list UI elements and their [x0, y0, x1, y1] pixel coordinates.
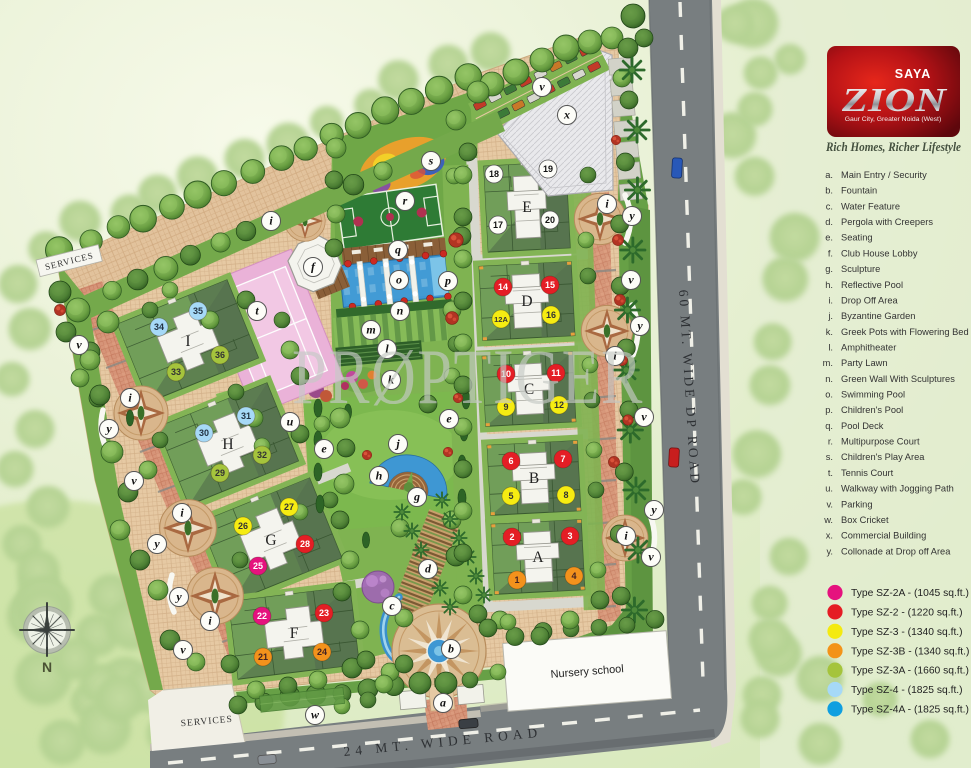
svg-text:Type SZ-4 - (1825 sq.ft.): Type SZ-4 - (1825 sq.ft.) [851, 685, 963, 696]
svg-text:g.: g. [825, 264, 833, 274]
svg-text:u.: u. [825, 484, 833, 494]
svg-text:27: 27 [284, 502, 294, 512]
svg-text:A: A [532, 549, 544, 566]
svg-text:H: H [222, 436, 233, 453]
svg-text:Type SZ-2 - (1220 sq.ft.): Type SZ-2 - (1220 sq.ft.) [851, 608, 963, 619]
svg-text:Children's Play Area: Children's Play Area [841, 452, 925, 462]
svg-text:l.: l. [828, 343, 833, 353]
svg-text:o: o [396, 273, 402, 287]
svg-text:Seating: Seating [841, 233, 873, 243]
svg-text:B: B [529, 470, 539, 487]
svg-text:y: y [649, 503, 657, 517]
svg-text:p: p [444, 274, 451, 288]
svg-text:6: 6 [508, 456, 513, 466]
svg-text:Type SZ-3B - (1340 sq.ft.): Type SZ-3B - (1340 sq.ft.) [851, 646, 969, 657]
svg-text:20: 20 [545, 215, 555, 225]
svg-text:16: 16 [546, 310, 556, 320]
svg-text:PRØPTIGER: PRØPTIGER [292, 333, 644, 420]
svg-text:12A: 12A [494, 315, 508, 324]
svg-text:36: 36 [215, 350, 225, 360]
svg-text:k.: k. [826, 327, 833, 337]
svg-text:18: 18 [489, 169, 499, 179]
svg-text:30: 30 [199, 428, 209, 438]
svg-text:Fountain: Fountain [841, 186, 877, 196]
svg-text:v: v [180, 643, 186, 657]
svg-text:Amphitheater: Amphitheater [841, 343, 896, 353]
svg-text:Greek Pots with Flowering Bed: Greek Pots with Flowering Bed [841, 327, 969, 337]
svg-text:34: 34 [154, 322, 164, 332]
svg-text:h.: h. [825, 280, 833, 290]
svg-text:Multipurpose Court: Multipurpose Court [841, 437, 920, 447]
svg-text:Type SZ-2A - (1045 sq.ft.): Type SZ-2A - (1045 sq.ft.) [851, 588, 969, 599]
svg-text:h: h [376, 469, 383, 483]
svg-text:Green Wall With Sculptures: Green Wall With Sculptures [841, 374, 955, 384]
svg-text:a: a [440, 696, 446, 710]
svg-text:v.: v. [826, 499, 833, 509]
svg-text:SAYA: SAYA [895, 67, 931, 81]
svg-text:Type SZ-3A - (1660 sq.ft.): Type SZ-3A - (1660 sq.ft.) [851, 666, 969, 677]
svg-text:d.: d. [825, 217, 833, 227]
svg-text:Sculpture: Sculpture [841, 264, 880, 274]
svg-text:Children's Pool: Children's Pool [841, 405, 903, 415]
svg-text:22: 22 [257, 611, 267, 621]
svg-text:i.: i. [828, 295, 833, 305]
svg-text:23: 23 [319, 608, 329, 618]
svg-text:Reflective Pool: Reflective Pool [841, 280, 903, 290]
svg-text:b: b [448, 642, 454, 656]
svg-text:d: d [425, 562, 432, 576]
svg-text:D: D [521, 293, 532, 310]
svg-text:e: e [321, 442, 327, 456]
svg-text:35: 35 [193, 306, 203, 316]
svg-text:n: n [397, 304, 404, 318]
svg-text:b.: b. [825, 186, 833, 196]
svg-text:26: 26 [238, 521, 248, 531]
svg-text:y.: y. [826, 546, 833, 556]
svg-text:14: 14 [498, 282, 508, 292]
svg-text:Club House Lobby: Club House Lobby [841, 248, 918, 258]
svg-text:Party Lawn: Party Lawn [841, 358, 888, 368]
svg-text:q.: q. [825, 421, 833, 431]
svg-text:Water Feature: Water Feature [841, 201, 900, 211]
svg-text:Pergola with Creepers: Pergola with Creepers [841, 217, 933, 227]
svg-text:Byzantine Garden: Byzantine Garden [841, 311, 915, 321]
svg-text:8: 8 [563, 490, 568, 500]
svg-text:1: 1 [514, 575, 519, 585]
svg-text:32: 32 [257, 450, 267, 460]
svg-text:c: c [389, 599, 395, 613]
svg-text:G: G [265, 532, 276, 549]
svg-text:I: I [185, 333, 190, 350]
svg-text:s.: s. [826, 452, 833, 462]
svg-text:v: v [539, 80, 545, 94]
svg-text:e.: e. [825, 233, 833, 243]
svg-text:j.: j. [827, 311, 833, 321]
svg-text:Walkway with Jogging Path: Walkway with Jogging Path [841, 484, 954, 494]
svg-text:v: v [648, 550, 654, 564]
svg-text:19: 19 [543, 164, 553, 174]
svg-text:29: 29 [215, 468, 225, 478]
svg-text:o.: o. [825, 390, 833, 400]
svg-text:w.: w. [823, 515, 833, 525]
svg-text:N: N [42, 659, 52, 675]
svg-text:v: v [131, 474, 137, 488]
svg-text:v: v [628, 273, 634, 287]
svg-text:4: 4 [571, 571, 576, 581]
svg-text:c.: c. [826, 201, 833, 211]
svg-text:Tennis Court: Tennis Court [841, 468, 894, 478]
svg-text:Rich Homes, Richer Lifestyle: Rich Homes, Richer Lifestyle [825, 139, 961, 154]
svg-text:33: 33 [171, 367, 181, 377]
svg-text:2: 2 [509, 532, 514, 542]
svg-text:r: r [403, 194, 408, 208]
svg-text:y: y [627, 209, 635, 223]
svg-text:g: g [413, 490, 420, 504]
svg-text:y: y [174, 590, 182, 604]
svg-text:f.: f. [828, 248, 833, 258]
svg-text:n.: n. [825, 374, 833, 384]
svg-text:a.: a. [825, 170, 833, 180]
svg-text:y: y [104, 422, 112, 436]
svg-text:p.: p. [825, 405, 833, 415]
svg-text:24: 24 [317, 647, 327, 657]
svg-text:Gaur City, Greater Noida (West: Gaur City, Greater Noida (West) [845, 116, 941, 123]
svg-text:m.: m. [823, 358, 833, 368]
svg-text:28: 28 [300, 539, 310, 549]
svg-text:Drop Off Area: Drop Off Area [841, 295, 899, 305]
svg-text:21: 21 [258, 652, 268, 662]
svg-text:v: v [76, 338, 82, 352]
svg-text:r.: r. [828, 437, 833, 447]
svg-text:17: 17 [493, 220, 503, 230]
svg-text:y: y [152, 537, 160, 551]
svg-text:q: q [395, 243, 401, 257]
svg-text:7: 7 [560, 454, 565, 464]
svg-text:Parking: Parking [841, 499, 873, 509]
svg-text:Main Entry / Security: Main Entry / Security [841, 170, 927, 180]
svg-text:y: y [635, 319, 643, 333]
svg-text:3: 3 [567, 531, 572, 541]
svg-text:E: E [522, 199, 531, 216]
svg-text:31: 31 [241, 411, 251, 421]
svg-text:Box Cricket: Box Cricket [841, 515, 889, 525]
svg-text:15: 15 [545, 280, 555, 290]
svg-text:ZION: ZION [841, 82, 948, 119]
svg-text:Type SZ-3 - (1340 sq.ft.): Type SZ-3 - (1340 sq.ft.) [851, 627, 963, 638]
svg-text:x: x [563, 108, 570, 122]
svg-text:x.: x. [826, 531, 833, 541]
svg-text:25: 25 [253, 561, 263, 571]
svg-text:Collonade at Drop off Area: Collonade at Drop off Area [841, 546, 951, 556]
svg-text:s: s [428, 154, 434, 168]
svg-text:t.: t. [828, 468, 833, 478]
svg-text:Pool Deck: Pool Deck [841, 421, 884, 431]
svg-text:F: F [290, 625, 299, 642]
svg-text:Commercial Building: Commercial Building [841, 531, 926, 541]
svg-text:w: w [311, 708, 320, 722]
svg-text:Type SZ-4A - (1825 sq.ft.): Type SZ-4A - (1825 sq.ft.) [851, 705, 969, 716]
svg-text:Swimming Pool: Swimming Pool [841, 390, 905, 400]
svg-text:5: 5 [508, 491, 513, 501]
